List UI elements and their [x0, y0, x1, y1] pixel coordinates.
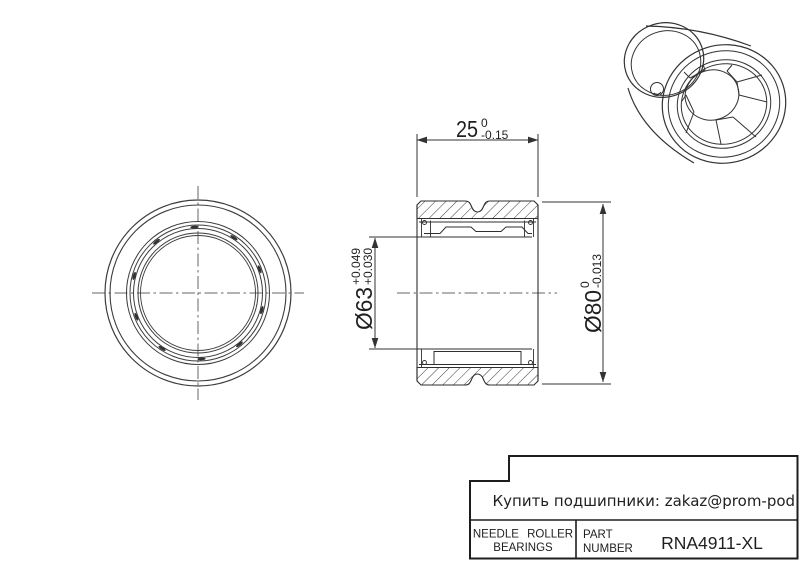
part-number: RNA4911-XL: [661, 533, 763, 553]
title-block: Купить подшипники: zakaz@prom-pod.ru NEE…: [470, 456, 800, 559]
category-line1: NEEDLE ROLLER: [473, 529, 573, 541]
category-line2: BEARINGS: [493, 542, 553, 554]
dimension-width: 25 0 -0.15: [417, 116, 538, 197]
bore-tolerance-lower: +0.030: [361, 248, 375, 285]
outer-tolerance-lower: -0.013: [590, 254, 604, 288]
roller-section: [434, 352, 521, 365]
bearing-3d-view: [615, 12, 800, 179]
cage-profile-top: [424, 227, 532, 234]
width-dimension-value: 25: [456, 116, 478, 142]
dimension-outer-diameter: Ø80 0 -0.013: [542, 202, 611, 384]
drawing-canvas: 25 0 -0.15 Ø63 +0.049 +0.030 Ø80 0 -0.01…: [0, 0, 800, 565]
front-face-outer: [647, 29, 800, 180]
lubrication-hole: [651, 83, 664, 96]
part-label-line1: PART: [583, 529, 613, 541]
part-label-line2: NUMBER: [583, 543, 633, 555]
width-tolerance-lower: -0.15: [481, 128, 509, 142]
bore-dimension-value: Ø63: [351, 287, 377, 330]
bottom-silhouette: [628, 88, 694, 163]
front-ring-inner: [666, 48, 783, 161]
top-silhouette: [646, 26, 751, 46]
contact-email-text: Купить подшипники: zakaz@prom-pod.ru: [492, 492, 800, 510]
outer-ring-section-bottom: [417, 368, 538, 386]
front-view: [92, 186, 304, 400]
outer-ring-section-top: [417, 201, 538, 219]
outer-dimension-value: Ø80: [580, 290, 606, 333]
drawing-sheet: 25 0 -0.15 Ø63 +0.049 +0.030 Ø80 0 -0.01…: [0, 0, 800, 565]
bore-depth-ellipse: [679, 63, 746, 127]
lubrication-hole-inner: [654, 92, 661, 94]
section-view: [397, 201, 557, 385]
